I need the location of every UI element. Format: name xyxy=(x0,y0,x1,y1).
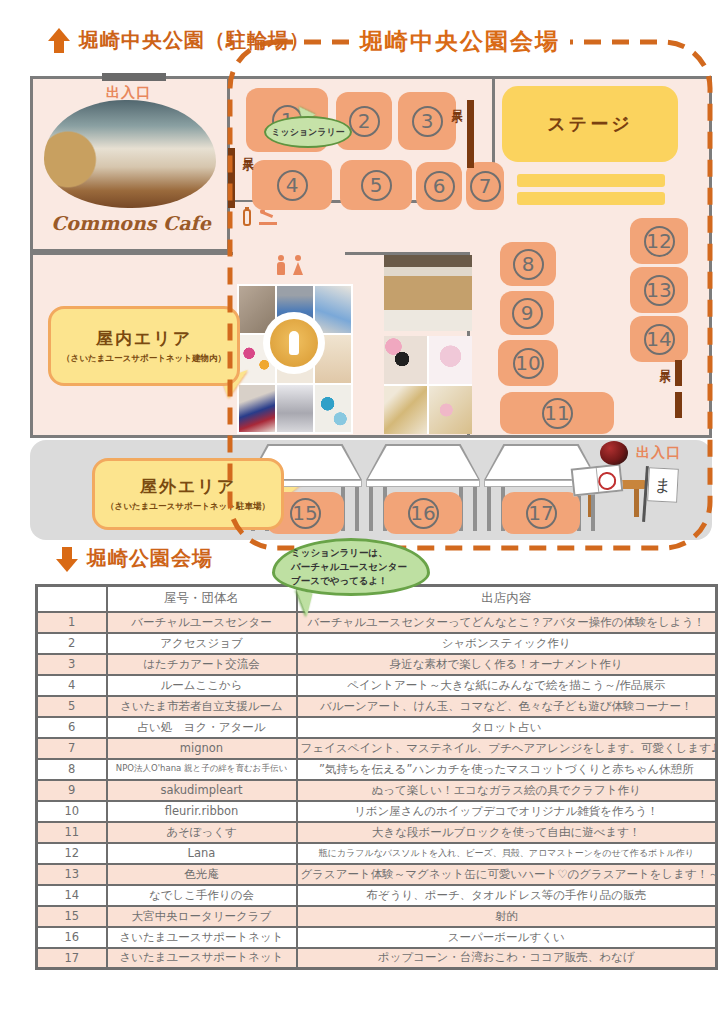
table-row: 11あそぼっくす大きな段ボールブロックを使って自由に遊べます！ xyxy=(37,822,717,843)
booth-11: 11 xyxy=(500,392,614,434)
booth-5: 5 xyxy=(340,160,412,210)
cell-no: 7 xyxy=(37,738,107,759)
cell-content: シャボンスティック作り xyxy=(297,633,717,654)
outdoor-area-title: 屋外エリア xyxy=(140,475,236,498)
cell-name: 大宮中央ロータリークラブ xyxy=(107,906,297,927)
table-row: 16さいたまユースサポートネットスーパーボールすくい xyxy=(37,927,717,948)
stamp-book-icon xyxy=(571,463,624,496)
mission-rally-bubble: ミッションラリー xyxy=(264,116,352,148)
indoor-area-title: 屋内エリア xyxy=(96,327,192,350)
cell-name: Lana xyxy=(107,843,297,864)
cell-name: はたチカアート交流会 xyxy=(107,654,297,675)
cell-name: NPO法人O'hana 親と子の絆を育むお手伝い xyxy=(107,759,297,780)
indoor-area-subtitle: （さいたまユースサポートネット建物内） xyxy=(62,353,226,365)
park-exit-label: 出入口 xyxy=(636,444,681,462)
indoor-area-bubble: 屋内エリア （さいたまユースサポートネット建物内） xyxy=(48,306,240,386)
exhibit-marker: 展示 xyxy=(448,100,474,168)
outdoor-area-subtitle: （さいたまユースサポートネット駐車場） xyxy=(106,501,270,513)
mission-info-bubble: ミッションラリーは、 バーチャルユースセンター ブースでやってるよ！ xyxy=(272,538,430,596)
restroom-box xyxy=(233,252,345,279)
booth-2: 2 xyxy=(336,92,392,150)
cell-name: fleurir.ribbon xyxy=(107,801,297,822)
cell-no: 2 xyxy=(37,633,107,654)
flag-icon: ま xyxy=(647,467,679,503)
stamp-icon xyxy=(600,441,628,465)
cell-name: なでしこ手作りの会 xyxy=(107,885,297,906)
header-no xyxy=(37,586,107,612)
stage: ステージ xyxy=(502,86,678,162)
table-row: 17さいたまユースサポートネットポップコーン・台湾おこわ・ココア販売、わなげ xyxy=(37,948,717,969)
latte-photo-circle xyxy=(263,312,325,374)
cell-name: アクセスジョブ xyxy=(107,633,297,654)
cell-content: ぬって楽しい！エコなガラス絵の具でクラフト作り xyxy=(297,780,717,801)
cardboard-blocks-photo xyxy=(384,255,472,331)
table-row: 1バーチャルユースセンターバーチャルユースセンターってどんなとこ？アバター操作の… xyxy=(37,612,717,633)
cell-no: 5 xyxy=(37,696,107,717)
booth-8: 8 xyxy=(500,242,556,286)
booth-12: 12 xyxy=(630,218,688,264)
top-heading: 堀崎中央公園（駐輪場） xyxy=(48,27,310,54)
cell-name: さいたまユースサポートネット xyxy=(107,948,297,969)
wall-segment xyxy=(492,79,495,169)
booth-7: 7 xyxy=(466,162,504,210)
cell-name: バーチャルユースセンター xyxy=(107,612,297,633)
cell-no: 10 xyxy=(37,801,107,822)
tent: 16 xyxy=(366,444,480,538)
table-row: 2アクセスジョブシャボンスティック作り xyxy=(37,633,717,654)
cell-no: 13 xyxy=(37,864,107,885)
table-row: 14なでしこ手作りの会布ぞうり、ポーチ、タオルドレス等の手作り品の販売 xyxy=(37,885,717,906)
booth-16: 16 xyxy=(384,492,462,534)
table-row: 15大宮中央ロータリークラブ射的 xyxy=(37,906,717,927)
cell-content: タロット占い xyxy=(297,717,717,738)
cell-no: 15 xyxy=(37,906,107,927)
table-row: 5さいたま市若者自立支援ルームバルーンアート、けん玉、コマなど、色々な子ども遊び… xyxy=(37,696,717,717)
cell-name: 色光庵 xyxy=(107,864,297,885)
cell-name: sakudimpleart xyxy=(107,780,297,801)
cell-content: バーチャルユースセンターってどんなとこ？アバター操作の体験をしよう！ xyxy=(297,612,717,633)
craft-photo-grid xyxy=(384,336,472,434)
booth-6: 6 xyxy=(416,162,462,210)
cell-content: 大きな段ボールブロックを使って自由に遊べます！ xyxy=(297,822,717,843)
booth-17: 17 xyxy=(502,492,580,534)
outdoor-area-bubble: 屋外エリア （さいたまユースサポートネット駐車場） xyxy=(92,458,284,530)
diaper-change-icon xyxy=(259,209,277,225)
restroom-woman-icon xyxy=(293,255,303,276)
booth-9: 9 xyxy=(500,291,554,335)
cell-content: ポップコーン・台湾おこわ・ココア販売、わなげ xyxy=(297,948,717,969)
cell-no: 1 xyxy=(37,612,107,633)
baby-bottle-icon xyxy=(243,209,251,226)
booth-4: 4 xyxy=(252,160,332,210)
cell-name: さいたまユースサポートネット xyxy=(107,927,297,948)
cell-name: 占い処 ヨク・アタール xyxy=(107,717,297,738)
booth-10: 10 xyxy=(498,340,558,386)
event-flyer: { "page": { "top_heading": "堀崎中央公園（駐輪場）"… xyxy=(0,0,726,1024)
stage-bench xyxy=(517,174,665,187)
table-row: 8NPO法人O'hana 親と子の絆を育むお手伝い”気持ちを伝える”ハンカチを使… xyxy=(37,759,717,780)
cell-no: 9 xyxy=(37,780,107,801)
booth-table-grid: 屋号・団体名 出店内容 1バーチャルユースセンターバーチャルユースセンターってど… xyxy=(35,584,718,970)
cell-content: 布ぞうり、ポーチ、タオルドレス等の手作り品の販売 xyxy=(297,885,717,906)
cell-name: ルームここから xyxy=(107,675,297,696)
cell-no: 8 xyxy=(37,759,107,780)
exhibit-marker: 展示 xyxy=(228,148,254,208)
table-row: 4ルームここからペイントアート～大きな紙にみんなで絵を描こう～/作品展示 xyxy=(37,675,717,696)
cell-content: バルーンアート、けん玉、コマなど、色々な子ども遊び体験コーナー！ xyxy=(297,696,717,717)
booth-table: 屋号・団体名 出店内容 1バーチャルユースセンターバーチャルユースセンターってど… xyxy=(35,584,715,970)
cell-no: 16 xyxy=(37,927,107,948)
bottom-heading: 堀崎公園会場 xyxy=(56,545,213,572)
bottom-heading-label: 堀崎公園会場 xyxy=(87,545,213,572)
cafe-name-label: Commons Cafe xyxy=(48,212,214,234)
reception-table-leg xyxy=(634,489,639,517)
cell-content: ”気持ちを伝える”ハンカチを使ったマスコットづくりと赤ちゃん休憩所 xyxy=(297,759,717,780)
booth-13: 13 xyxy=(630,267,688,313)
cell-name: あそぼっくす xyxy=(107,822,297,843)
cell-content: 瓶にカラフルなバスソルトを入れ、ビーズ、貝殻、アロマストーンをのせて作るボトル作… xyxy=(297,843,717,864)
down-arrow-icon xyxy=(56,546,78,572)
table-row: 12Lana瓶にカラフルなバスソルトを入れ、ビーズ、貝殻、アロマストーンをのせて… xyxy=(37,843,717,864)
cell-content: 身近な素材で楽しく作る！オーナメント作り xyxy=(297,654,717,675)
table-row: 13色光庵グラスアート体験～マグネット缶に可愛いハート♡のグラスアートをします！… xyxy=(37,864,717,885)
cell-no: 4 xyxy=(37,675,107,696)
header-name: 屋号・団体名 xyxy=(107,586,297,612)
top-heading-label: 堀崎中央公園（駐輪場） xyxy=(79,27,310,54)
table-row: 6占い処 ヨク・アタールタロット占い xyxy=(37,717,717,738)
table-row: 3はたチカアート交流会身近な素材で楽しく作る！オーナメント作り xyxy=(37,654,717,675)
restroom-man-icon xyxy=(276,255,286,276)
cell-content: 射的 xyxy=(297,906,717,927)
map-title: 堀崎中央公園会場 xyxy=(350,26,570,57)
entrance-gate-bar xyxy=(102,73,166,81)
cell-no: 11 xyxy=(37,822,107,843)
cell-name: mignon xyxy=(107,738,297,759)
cell-no: 3 xyxy=(37,654,107,675)
cell-content: リボン屋さんのホイップデコでオリジナル雑貨を作ろう！ xyxy=(297,801,717,822)
cell-content: グラスアート体験～マグネット缶に可愛いハート♡のグラスアートをします！～ xyxy=(297,864,717,885)
cell-no: 6 xyxy=(37,717,107,738)
cell-content: フェイスペイント、マステネイル、プチヘアアレンジをします。可愛くします♪ xyxy=(297,738,717,759)
cell-content: スーパーボールすくい xyxy=(297,927,717,948)
exhibit-marker: 展示 xyxy=(656,360,682,418)
cell-no: 17 xyxy=(37,948,107,969)
table-row: 10fleurir.ribbonリボン屋さんのホイップデコでオリジナル雑貨を作ろ… xyxy=(37,801,717,822)
cell-content: ペイントアート～大きな紙にみんなで絵を描こう～/作品展示 xyxy=(297,675,717,696)
table-row: 7mignonフェイスペイント、マステネイル、プチヘアアレンジをします。可愛くし… xyxy=(37,738,717,759)
booth-14: 14 xyxy=(630,316,688,362)
cell-no: 14 xyxy=(37,885,107,906)
cell-name: さいたま市若者自立支援ルーム xyxy=(107,696,297,717)
up-arrow-icon xyxy=(48,28,70,54)
cell-no: 12 xyxy=(37,843,107,864)
cafe-entrance-label: 出入口 xyxy=(106,84,151,102)
table-row: 9sakudimpleartぬって楽しい！エコなガラス絵の具でクラフト作り xyxy=(37,780,717,801)
booth-table-body: 1バーチャルユースセンターバーチャルユースセンターってどんなとこ？アバター操作の… xyxy=(37,612,717,969)
stage-bench xyxy=(517,192,665,205)
